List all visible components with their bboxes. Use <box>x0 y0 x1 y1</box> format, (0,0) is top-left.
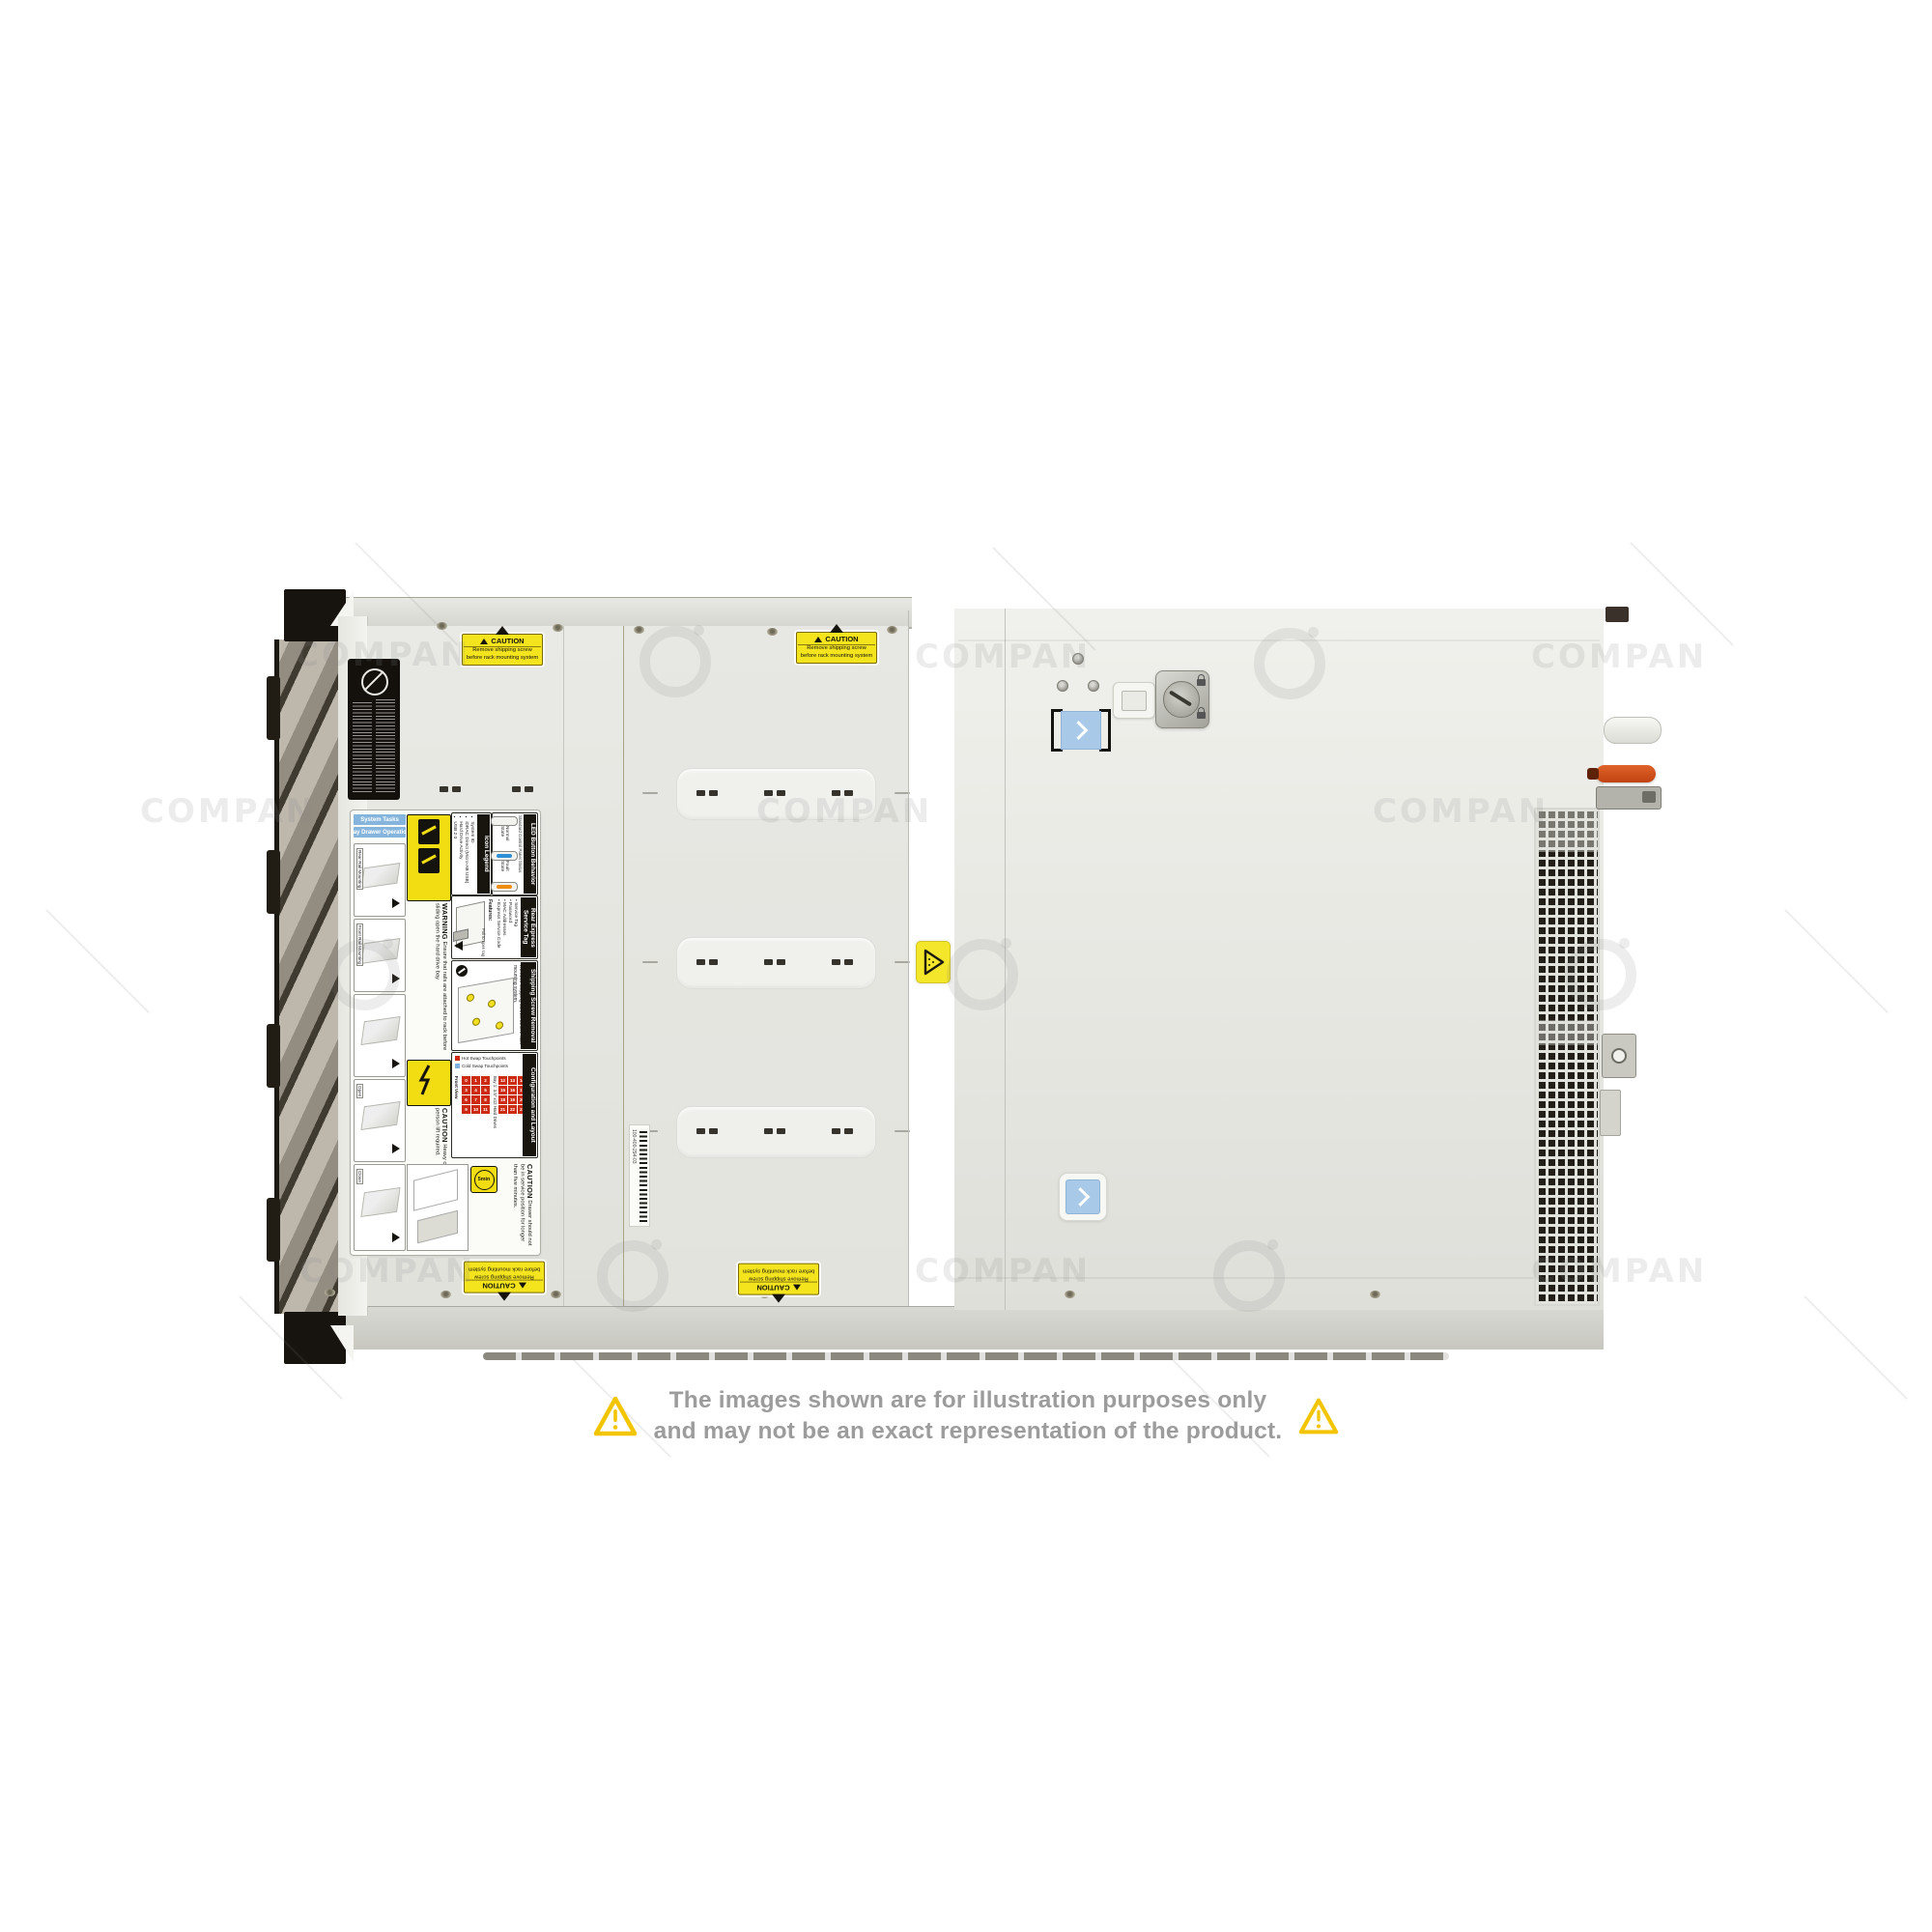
panel-seam <box>563 626 564 1306</box>
orange-release-lever <box>1596 765 1656 782</box>
caution-label-top-left: CAUTION Remove shipping screw before rac… <box>462 634 543 666</box>
rail-sketch: Rear Rail Mounting <box>354 843 406 917</box>
icon-legend-section: System IDiDRAC Direct (Micro-AB USB)Hard… <box>451 812 492 895</box>
lock-cylinder <box>1163 681 1200 718</box>
shock-hazard-icon <box>407 1060 451 1106</box>
fine-print <box>376 697 395 792</box>
rear-tab <box>1600 1090 1621 1136</box>
barcode-label: 100-400-294-03 <box>629 1124 650 1227</box>
rack-ear-bottom <box>284 1312 346 1364</box>
drawer-release-button <box>1059 1173 1107 1221</box>
unlock-icon <box>1197 679 1206 686</box>
regulatory-label <box>348 659 400 800</box>
bezel-bumper <box>267 676 280 740</box>
legend-item: iDRAC Direct (Micro-AB USB) <box>464 815 469 893</box>
rack-ear-top <box>284 589 346 641</box>
drive-slot: 16 <box>508 1086 517 1094</box>
cold-swap-swatch <box>455 1064 460 1068</box>
lift-sketch <box>354 994 406 1077</box>
metal-latch <box>1596 786 1662 810</box>
bezel-bumper <box>267 850 280 914</box>
screw <box>1072 653 1084 665</box>
warning-triangle-icon <box>592 1395 639 1437</box>
five-minute-icon: 5min <box>470 1166 497 1193</box>
blue-latch-pad <box>1061 711 1101 750</box>
warning-text: WARNING Ensure that rails are attached t… <box>409 903 449 1058</box>
rail-sketch: Front Rail Mounting <box>354 919 406 992</box>
slider-latch <box>1113 682 1155 719</box>
bezel-wedge <box>330 1325 354 1362</box>
led-behavior-section: Normal State Fault State Standard Contro… <box>492 812 538 895</box>
rear-service-tag-section: Features: Service TagPasswordMAC Address… <box>451 895 538 959</box>
led-fault <box>491 882 518 892</box>
drive-slot: 0 <box>462 1076 470 1085</box>
screw <box>440 1291 451 1298</box>
hazard-arrow-icon <box>917 942 950 982</box>
keyhole-slot <box>1169 690 1192 706</box>
drawer-service-sketch <box>407 1164 469 1251</box>
arrow-icon <box>454 941 463 951</box>
chevron-right-icon <box>1071 1187 1091 1207</box>
bezel-bumper <box>267 1024 280 1088</box>
screw <box>553 624 563 632</box>
disclaimer: The images shown are for illustration pu… <box>0 1385 1932 1447</box>
led-normal <box>491 851 518 861</box>
drive-slot: 6 <box>462 1095 470 1104</box>
vent-grid <box>1534 808 1600 1306</box>
screw <box>437 622 447 630</box>
screw <box>1088 680 1099 692</box>
key-lock <box>1155 670 1209 728</box>
drive-slot: 1 <box>471 1076 480 1085</box>
feature-item: Password <box>507 899 512 955</box>
rear-nub <box>1605 607 1629 622</box>
hot-swap-swatch <box>455 1056 460 1061</box>
blue-button-pad <box>1065 1179 1100 1214</box>
label-header: System Tasks <box>354 814 406 825</box>
chassis-top-rim <box>340 597 912 629</box>
chassis-bottom-face <box>340 1306 1604 1350</box>
caution-title: CAUTION <box>740 1282 817 1293</box>
screw <box>887 626 897 634</box>
drive-slot: 8 <box>481 1095 490 1104</box>
caution-drawer-text: CAUTION Drawer should not be in service … <box>499 1164 534 1249</box>
drive-slot: 13 <box>508 1076 517 1085</box>
prohibition-icon <box>361 668 388 696</box>
cover-release-latch <box>1051 709 1111 752</box>
shipping-screw-section: Remove shipping screws before rack mount… <box>451 960 538 1051</box>
front-drive-bezel <box>274 639 345 1314</box>
bay1-grid: 01234567891011 <box>462 1076 490 1114</box>
led-off <box>491 816 518 826</box>
screw <box>325 1289 335 1296</box>
drive-slot: 21 <box>498 1105 507 1114</box>
grip-recess <box>676 768 876 820</box>
fine-print <box>353 701 372 792</box>
screw <box>1057 680 1068 692</box>
pinch-hazard-icon <box>407 814 451 901</box>
drive-slot: 19 <box>508 1095 517 1104</box>
disclaimer-text: The images shown are for illustration pu… <box>654 1385 1283 1447</box>
drive-slot: 4 <box>471 1086 480 1094</box>
barcode-icon <box>639 1129 647 1222</box>
chevron-right-icon <box>1069 721 1089 740</box>
product-photo-canvas: CAUTION Remove shipping screw before rac… <box>0 0 1932 1932</box>
feature-item: MAC Addresses <box>501 899 506 955</box>
drive-slot: 9 <box>462 1105 470 1114</box>
drawer-close-sketch: Close <box>354 1164 406 1251</box>
drawer-open-sketch: Open <box>354 1079 406 1162</box>
caution-title: CAUTION <box>466 1280 543 1291</box>
feature-item: Service Tag <box>513 899 518 955</box>
screw <box>1370 1291 1380 1298</box>
rear-bracket <box>1602 1034 1636 1078</box>
drive-slot: 12 <box>498 1076 507 1085</box>
drive-slot: 3 <box>462 1086 470 1094</box>
screw-location-sketch <box>458 978 514 1043</box>
caution-label-bottom-left: CAUTION Remove shipping screw before rac… <box>464 1262 545 1293</box>
bezel-bumper <box>267 1198 280 1262</box>
lightning-icon <box>408 1061 446 1099</box>
drive-slot: 2 <box>481 1076 490 1085</box>
screw <box>767 628 778 636</box>
drive-slot: 7 <box>471 1095 480 1104</box>
drive-slot: 22 <box>508 1105 517 1114</box>
cover-hinge-strip <box>954 609 1006 1310</box>
grip-recess <box>676 937 876 989</box>
label-header: Bay Drawer Operation <box>354 827 406 838</box>
lock-icon <box>1197 712 1206 719</box>
screw <box>1065 1291 1075 1298</box>
legend-item: System ID <box>469 815 474 893</box>
configuration-section: Hot Swap Touchpoints Cold Swap Touchpoin… <box>451 1052 538 1158</box>
warning-triangle-sticker <box>916 941 951 983</box>
rear-cap <box>1604 717 1662 744</box>
caution-label-top-mid: CAUTION Remove shipping screw before rac… <box>796 632 877 664</box>
grip-recess <box>676 1106 876 1158</box>
feature-item: Express Service Code <box>496 899 500 955</box>
caution-label-bottom-mid: CAUTION Remove shipping screw before rac… <box>738 1264 819 1295</box>
stop-icon <box>456 965 468 977</box>
service-instruction-label: System Tasks Bay Drawer Operation Rear R… <box>350 810 541 1256</box>
drive-slot: 15 <box>498 1086 507 1094</box>
caution-title: CAUTION <box>798 635 875 645</box>
legend-item: Hard Drive Activity <box>458 815 463 893</box>
caution-title: CAUTION <box>464 637 541 647</box>
drive-slot: 11 <box>481 1105 490 1114</box>
screw <box>551 1291 561 1298</box>
drive-slot: 18 <box>498 1095 507 1104</box>
drive-slot: 10 <box>471 1105 480 1114</box>
drive-slot: 5 <box>481 1086 490 1094</box>
screw <box>634 626 644 634</box>
chassis-shadow <box>483 1352 1449 1360</box>
warning-triangle-icon <box>1297 1397 1340 1435</box>
legend-item: USB 2.0 <box>452 815 457 893</box>
